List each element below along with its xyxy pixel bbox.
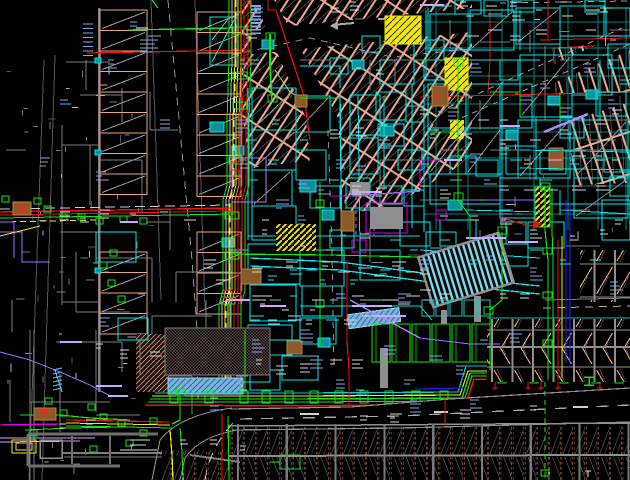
svg-text:4: 4	[435, 92, 441, 104]
svg-text:Y: Y	[551, 156, 558, 167]
